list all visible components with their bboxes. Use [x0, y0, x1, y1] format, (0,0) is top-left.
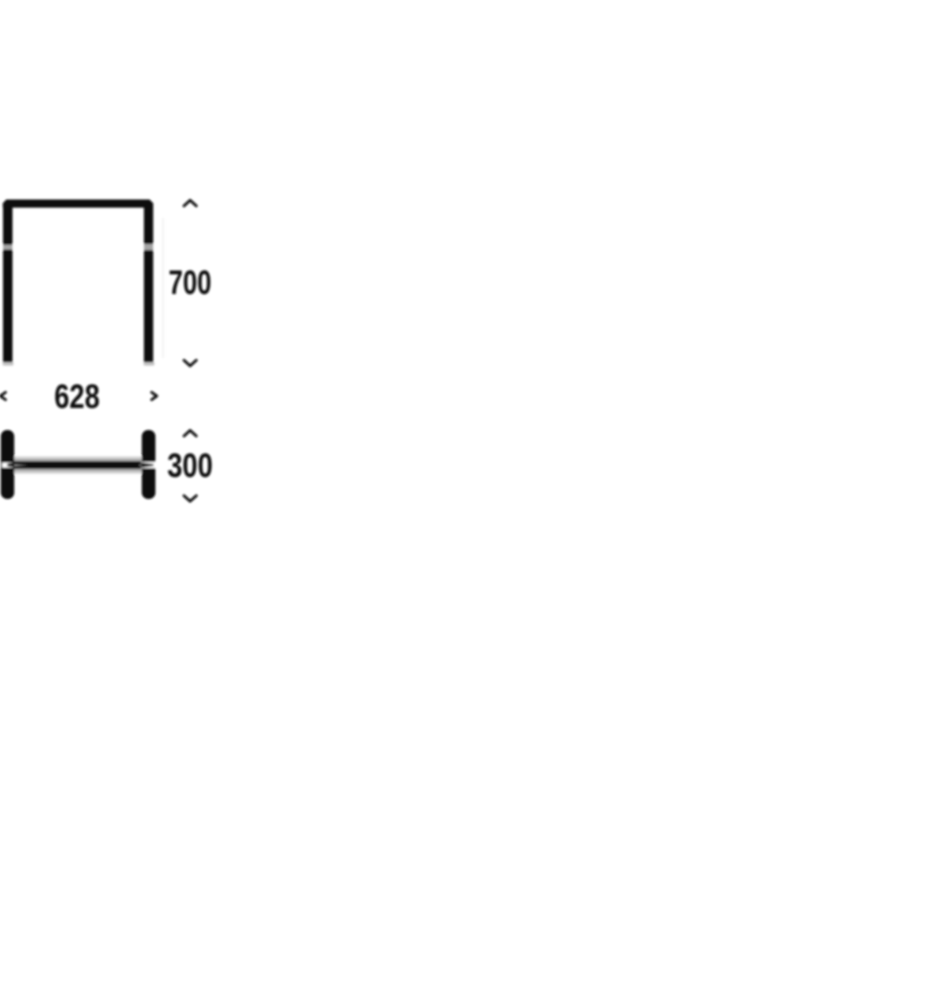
svg-text:700: 700 — [169, 264, 212, 302]
svg-text:300: 300 — [167, 447, 213, 485]
svg-text:628: 628 — [54, 378, 100, 416]
